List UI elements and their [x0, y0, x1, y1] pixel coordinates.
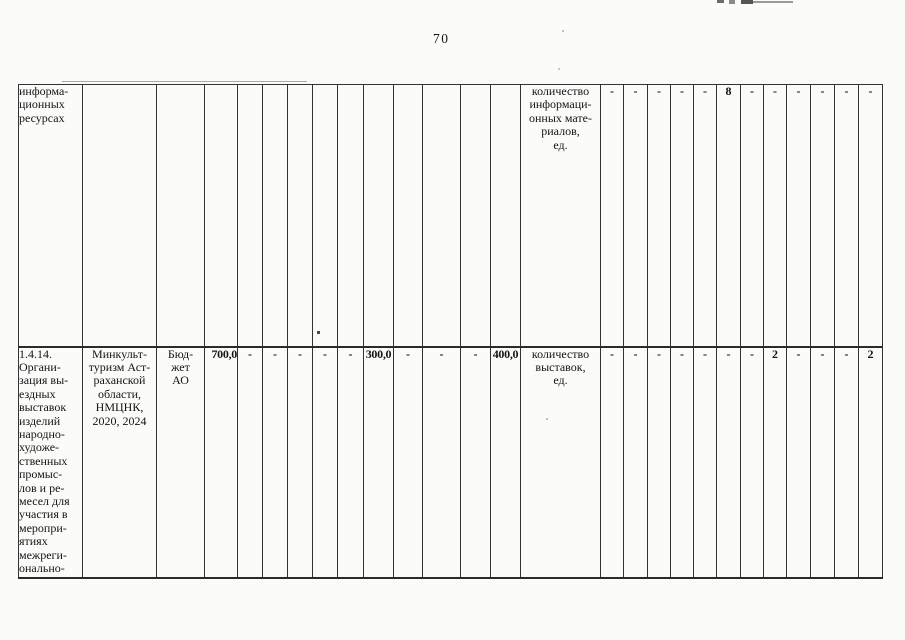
activity-description-cell: информа- ционных ресурсах [19, 85, 83, 347]
table-row-activity-1-4-14: 1.4.14. Органи- зация вы- ездных выставо… [19, 347, 883, 578]
indicator-value-cell: - [601, 347, 624, 578]
amount-cell: - [394, 347, 423, 578]
amount-cell: - [313, 347, 338, 578]
indicator-value-cell: - [624, 85, 648, 347]
budget-source-cell [157, 85, 205, 347]
document-page: 70 информа- ционных ресурсах [0, 0, 905, 640]
executor-cell [83, 85, 157, 347]
budget-source-cell: Бюд- жет АО [157, 347, 205, 578]
amount-cell [313, 85, 338, 347]
activity-description-cell: 1.4.14. Органи- зация вы- ездных выставо… [19, 347, 83, 578]
amount-cell [491, 85, 521, 347]
indicator-value-cell: - [741, 85, 764, 347]
amount-cell [364, 85, 394, 347]
amount-cell [423, 85, 461, 347]
amount-cell: - [238, 347, 263, 578]
indicator-value-cell: - [741, 347, 764, 578]
indicator-value-cell: - [694, 347, 717, 578]
indicator-value-cell: - [764, 85, 787, 347]
amount-cell: - [263, 347, 288, 578]
scan-artifact [717, 0, 724, 3]
indicator-value-cell: - [601, 85, 624, 347]
indicator-name-cell: количество выставок, ед. [521, 347, 601, 578]
amount-cell: 400,0 [491, 347, 521, 578]
indicator-value-cell: - [624, 347, 648, 578]
amount-cell [205, 85, 238, 347]
indicator-value-cell: - [811, 85, 835, 347]
executor-cell: Минкульт- туризм Аст- раханской области,… [83, 347, 157, 578]
scan-speck [562, 30, 564, 32]
page-number: 70 [433, 31, 450, 47]
amount-cell: - [338, 347, 364, 578]
scan-artifact [741, 0, 753, 4]
amount-cell [288, 85, 313, 347]
scan-artifact [62, 81, 307, 82]
indicator-value-cell: 2 [859, 347, 883, 578]
indicator-value-cell: - [694, 85, 717, 347]
indicator-value-cell: 2 [764, 347, 787, 578]
amount-total-cell: 700,0 [205, 347, 238, 578]
table-row-continuation: информа- ционных ресурсах количество инф… [19, 85, 883, 347]
program-financing-table: информа- ционных ресурсах количество инф… [18, 84, 883, 579]
indicator-value-cell: - [835, 85, 859, 347]
amount-cell: - [423, 347, 461, 578]
indicator-value-cell: - [671, 85, 694, 347]
scan-speck [558, 68, 560, 70]
amount-cell [394, 85, 423, 347]
indicator-value-cell: 8 [717, 85, 741, 347]
amount-cell [338, 85, 364, 347]
amount-cell: - [461, 347, 491, 578]
amount-cell: - [288, 347, 313, 578]
scan-artifact [753, 1, 793, 3]
indicator-value-cell: - [835, 347, 859, 578]
indicator-value-cell: - [787, 347, 811, 578]
indicator-value-cell: - [787, 85, 811, 347]
indicator-value-cell: - [648, 85, 671, 347]
indicator-name-cell: количество информаци- онных мате- риалов… [521, 85, 601, 347]
amount-cell: 300,0 [364, 347, 394, 578]
indicator-value-cell: - [859, 85, 883, 347]
indicator-value-cell: - [811, 347, 835, 578]
amount-cell [238, 85, 263, 347]
indicator-value-cell: - [648, 347, 671, 578]
scan-artifact [729, 0, 735, 4]
indicator-value-cell: - [671, 347, 694, 578]
indicator-value-cell: - [717, 347, 741, 578]
amount-cell [461, 85, 491, 347]
amount-cell [263, 85, 288, 347]
